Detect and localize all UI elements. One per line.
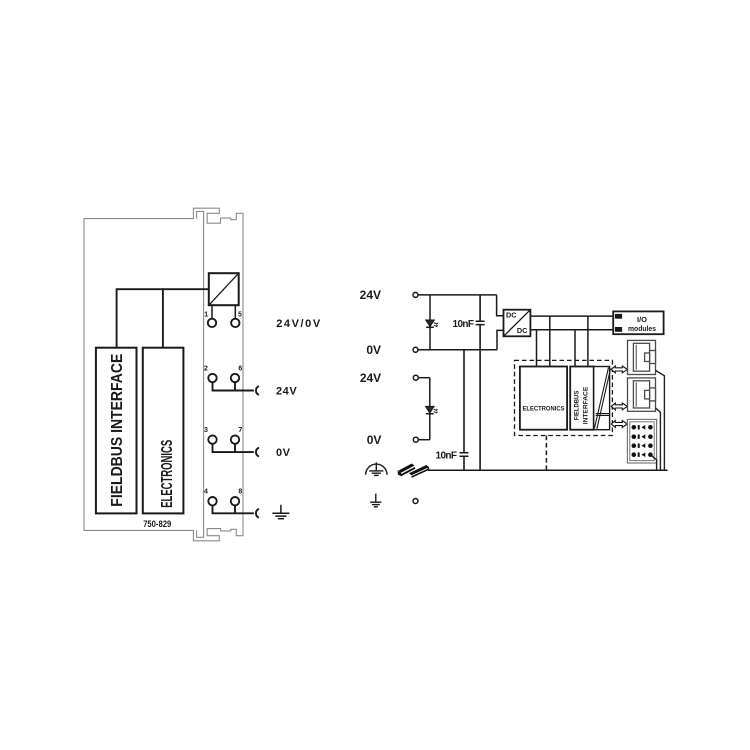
svg-text:DC: DC <box>517 326 528 335</box>
svg-text:ELECTRONICS: ELECTRONICS <box>523 405 566 412</box>
svg-text:6: 6 <box>238 366 242 373</box>
svg-text:modules: modules <box>628 324 656 333</box>
svg-text:2: 2 <box>204 366 208 373</box>
svg-text:7: 7 <box>238 427 242 434</box>
svg-text:ELECTRONICS: ELECTRONICS <box>159 440 176 508</box>
svg-text:1: 1 <box>204 312 208 319</box>
svg-text:0V: 0V <box>366 343 381 357</box>
svg-text:I/O: I/O <box>637 315 647 324</box>
svg-text:0V: 0V <box>367 433 382 447</box>
svg-text:24V: 24V <box>276 385 297 397</box>
svg-text:4: 4 <box>204 489 208 496</box>
svg-text:750-829: 750-829 <box>143 519 171 529</box>
svg-text:0V: 0V <box>276 447 291 459</box>
svg-text:24V: 24V <box>360 371 381 385</box>
svg-text:3: 3 <box>204 427 208 434</box>
svg-text:10nF: 10nF <box>453 319 475 330</box>
svg-text:FIELDBUS: FIELDBUS <box>573 391 580 421</box>
svg-text:DC: DC <box>506 311 517 320</box>
svg-text:10nF: 10nF <box>436 450 458 461</box>
svg-text:24V: 24V <box>360 288 381 302</box>
svg-text:INTERFACE: INTERFACE <box>583 387 590 425</box>
svg-text:FIELDBUS INTERFACE: FIELDBUS INTERFACE <box>109 353 126 506</box>
svg-text:5: 5 <box>238 312 242 319</box>
svg-text:8: 8 <box>238 489 242 496</box>
